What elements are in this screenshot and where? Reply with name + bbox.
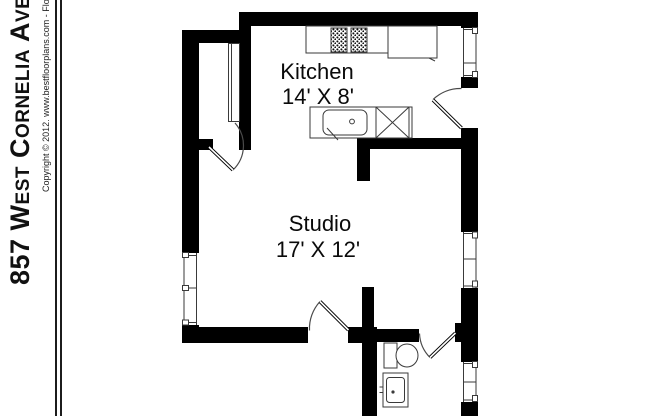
window-right-bath — [464, 362, 478, 403]
window-right-kitchen — [464, 28, 478, 78]
door-bathroom — [420, 333, 456, 358]
wall-right-b — [461, 77, 478, 88]
wall-right-c — [461, 128, 478, 232]
wall-stub-studio — [362, 287, 374, 329]
wall-kitchen-left — [239, 12, 251, 150]
wall-divider-stub — [357, 138, 370, 181]
wall-right-d — [461, 288, 478, 362]
wall-left-upper — [182, 30, 199, 253]
door-studio-south — [309, 302, 348, 331]
closet-shelf — [229, 44, 240, 122]
wall-right-a — [461, 12, 478, 28]
kitchen-label: Kitchen — [280, 59, 353, 84]
stove-burner-right-icon — [351, 28, 367, 52]
floorplan-drawing: Kitchen 14' X 8' Studio 17' X 12' — [0, 0, 652, 416]
floorplan-page: 857 West Cornelia Avenue Copyright © 201… — [0, 0, 652, 416]
bathroom-faucet-icon — [391, 390, 394, 393]
wall-bottom-left — [182, 327, 308, 343]
bathroom-sink-basin — [387, 378, 405, 403]
wall-right-e — [461, 402, 478, 416]
window-right-studio — [464, 232, 478, 288]
kitchen-faucet-icon — [350, 119, 355, 124]
toilet-bowl — [396, 344, 418, 367]
refrigerator — [388, 26, 437, 58]
wall-bath-left — [362, 343, 377, 416]
window-left-studio — [183, 253, 197, 326]
studio-label: Studio — [289, 211, 351, 236]
door-closet — [209, 123, 243, 170]
bathroom-sink-taps — [380, 387, 384, 393]
kitchen-dimensions: 14' X 8' — [282, 84, 354, 109]
stove-burner-left-icon — [331, 28, 347, 52]
wall-bath-top — [377, 329, 419, 342]
studio-dimensions: 17' X 12' — [276, 237, 360, 262]
door-entry — [433, 88, 462, 128]
wall-bottom-center — [348, 327, 377, 343]
wall-top — [239, 12, 478, 26]
wall-kitchen-studio-divider — [365, 138, 461, 149]
toilet-tank — [384, 343, 397, 368]
